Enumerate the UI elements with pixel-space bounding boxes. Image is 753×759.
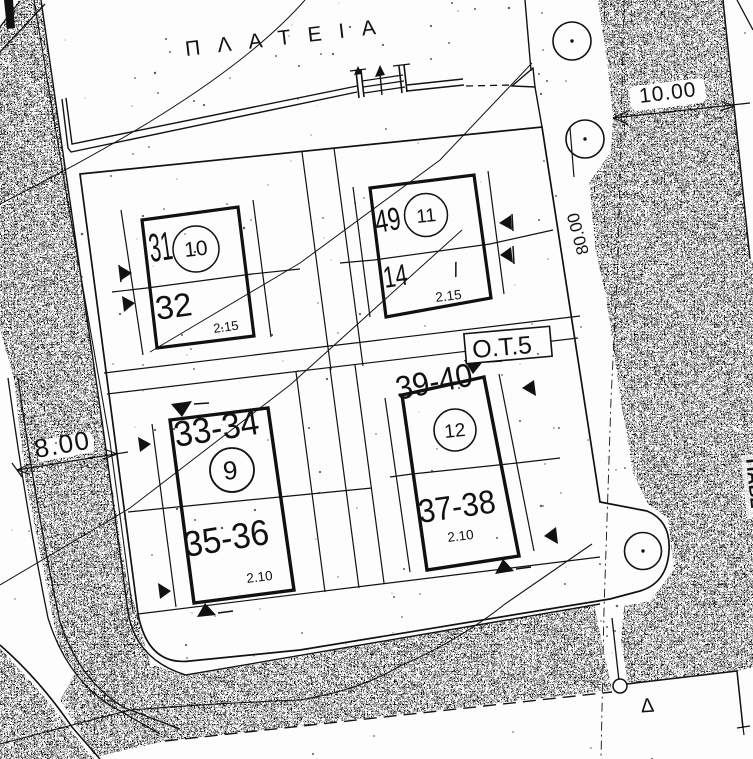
svg-text:2.10: 2.10 [246,568,274,586]
svg-text:2.15: 2.15 [435,287,463,305]
svg-text:10: 10 [183,237,209,262]
svg-text:32: 32 [153,285,195,327]
svg-text:Δ: Δ [640,695,655,718]
svg-text:11: 11 [415,205,437,228]
svg-text:O.T.5: O.T.5 [471,331,533,364]
svg-text:12: 12 [443,420,466,443]
svg-text:2.10: 2.10 [447,527,475,545]
